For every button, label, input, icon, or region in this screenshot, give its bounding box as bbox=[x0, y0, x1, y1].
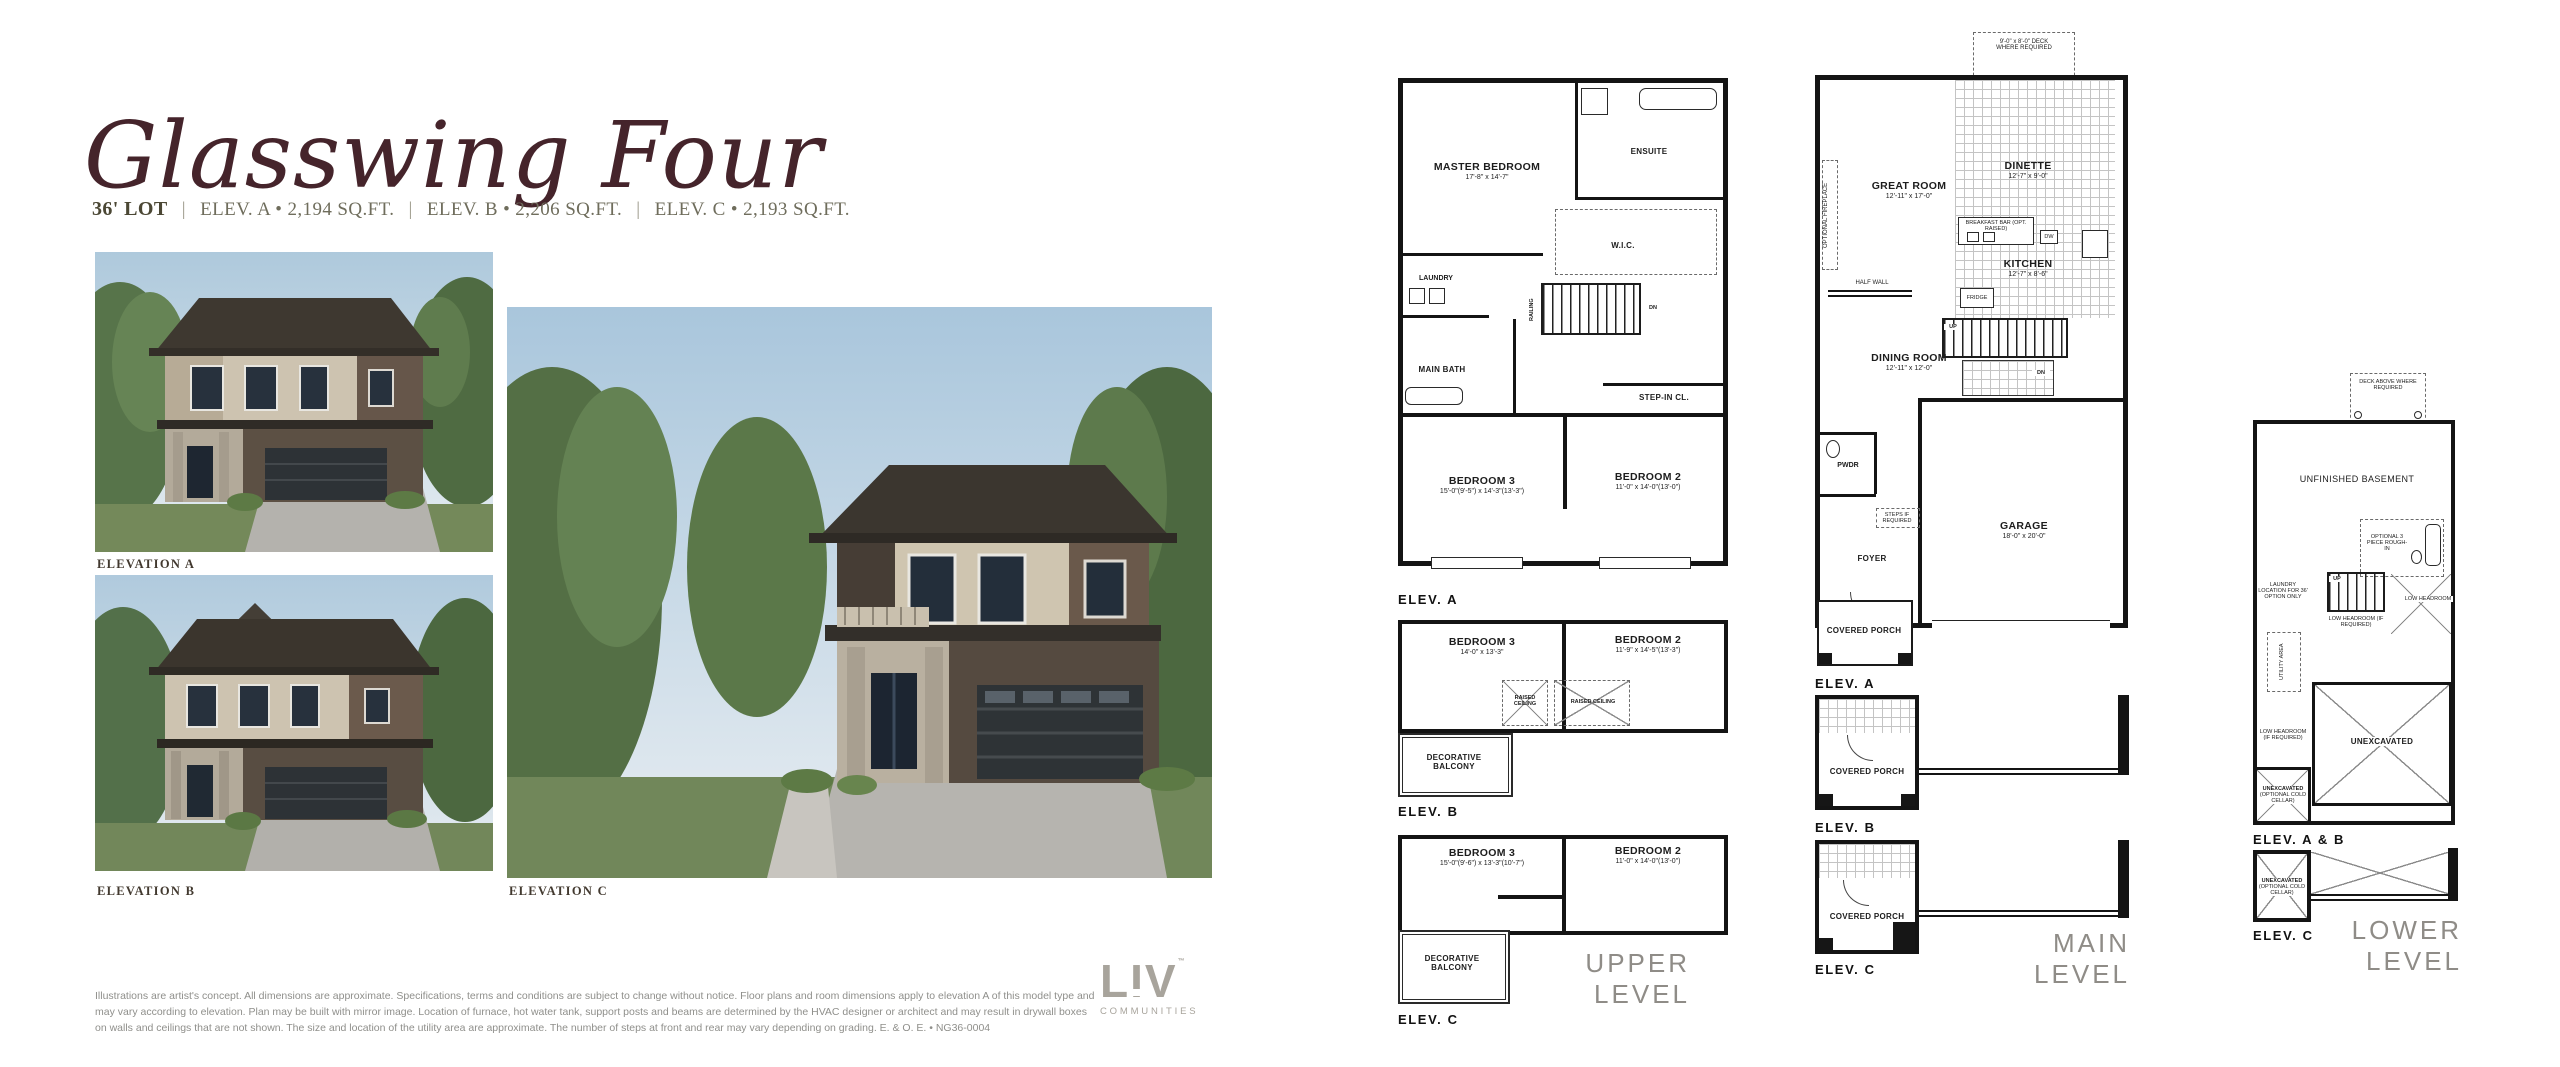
main-level-porch-elev-c: COVERED PORCH bbox=[1815, 840, 1919, 954]
brochure-page: { "title": "Glasswing Four", "subtitle":… bbox=[0, 0, 2560, 1067]
wall bbox=[1820, 494, 1876, 497]
balcony-label: DECORATIVE BALCONY bbox=[1408, 954, 1496, 972]
breakfast-bar-label: BREAKFAST BAR (OPT. RAISED) bbox=[1963, 220, 2029, 232]
garage-wall bbox=[1918, 398, 2128, 402]
wall bbox=[1575, 197, 1723, 200]
deck-above-outline: DECK ABOVE WHERE REQUIRED bbox=[2350, 373, 2426, 423]
wall bbox=[1562, 839, 1566, 931]
decorative-balcony-elev-c: DECORATIVE BALCONY bbox=[1398, 930, 1510, 1004]
wall bbox=[1498, 895, 1566, 899]
wall-stub bbox=[2118, 840, 2129, 918]
laundry-location-note: LAUNDRY LOCATION FOR 36' OPTION ONLY bbox=[2257, 582, 2309, 600]
wall bbox=[1513, 319, 1516, 413]
porch-label: COVERED PORCH bbox=[1823, 767, 1911, 776]
upper-level-plan-elev-a: ENSUITE MASTER BEDROOM 17'-8" x 14'-7" W… bbox=[1398, 78, 1728, 566]
low-headroom-if-required-label: LOW HEADROOM (IF REQUIRED) bbox=[2325, 616, 2387, 628]
bay-window bbox=[1431, 557, 1523, 569]
porch-roof-grid bbox=[1819, 699, 1915, 733]
porch-hatch bbox=[2311, 852, 2449, 894]
toilet-fixture bbox=[1826, 440, 1840, 458]
wall bbox=[1575, 83, 1578, 199]
elevation-a-rendering bbox=[95, 252, 493, 552]
half-wall-line bbox=[1828, 290, 1912, 297]
dryer-fixture bbox=[1429, 288, 1445, 304]
logo-i-notch bbox=[1132, 989, 1143, 996]
steps-note: STEPS IF REQUIRED bbox=[1879, 512, 1915, 524]
decorative-balcony-elev-b: DECORATIVE BALCONY bbox=[1398, 733, 1513, 797]
wall-stub bbox=[2118, 695, 2129, 775]
tub-fixture bbox=[1405, 387, 1463, 405]
deck-post bbox=[2354, 411, 2362, 419]
raised-ceiling-label: RAISED CEILING bbox=[1505, 695, 1545, 707]
utility-area-outline: UTILITY AREA bbox=[2267, 632, 2301, 692]
raised-ceiling-label: RAISED CEILING bbox=[1563, 699, 1623, 705]
wall bbox=[1603, 383, 1723, 386]
wall bbox=[1403, 315, 1489, 318]
sink-fixture bbox=[1983, 232, 1995, 242]
room-label-great-room: GREAT ROOM 12'-11" x 17'-0" bbox=[1834, 180, 1984, 200]
spec-elev-a: ELEV. A • 2,194 SQ.FT. bbox=[200, 199, 394, 220]
lower-elev-ab-tag: ELEV. A & B bbox=[2253, 832, 2345, 847]
porch-roof-grid bbox=[1819, 844, 1915, 878]
elevation-b-illustration bbox=[95, 575, 493, 871]
stairs-dn-label: DN bbox=[2032, 370, 2050, 376]
stairs-dn-label: DN bbox=[1643, 305, 1663, 311]
wall bbox=[1874, 432, 1877, 494]
room-label-bedroom-2: BEDROOM 2 11'-9" x 14'-5"(13'-3") bbox=[1576, 634, 1720, 654]
lot-size: 36' LOT bbox=[92, 198, 168, 220]
wall bbox=[1403, 253, 1543, 256]
stove-fixture bbox=[2082, 230, 2108, 258]
room-label-ensuite: ENSUITE bbox=[1589, 147, 1709, 156]
low-headroom-hatch bbox=[2391, 574, 2451, 634]
porch-pillar bbox=[1893, 922, 1915, 950]
legal-disclaimer: Illustrations are artist's concept. All … bbox=[95, 988, 1100, 1037]
elevation-b-label: ELEVATION B bbox=[97, 884, 195, 899]
covered-porch-elev-a: COVERED PORCH bbox=[1817, 600, 1913, 666]
room-label-master-bedroom: MASTER BEDROOM 17'-8" x 14'-7" bbox=[1411, 161, 1563, 181]
room-label-dinette: DINETTE 12'-7" x 9'-0" bbox=[1972, 160, 2084, 180]
wall bbox=[1563, 417, 1567, 509]
room-label-step-in-closet: STEP-IN CL. bbox=[1609, 393, 1719, 402]
elevation-b-rendering bbox=[95, 575, 493, 871]
upper-level-plan-elev-c: BEDROOM 3 15'-0"(9'-6") x 13'-3"(10'-7")… bbox=[1398, 835, 1728, 935]
main-level-plan-elev-a: GREAT ROOM 12'-11" x 17'-0" OPTIONAL FIR… bbox=[1815, 75, 2128, 628]
spec-elev-b: ELEV. B • 2,206 SQ.FT. bbox=[427, 199, 622, 220]
porch-pillar bbox=[1898, 653, 1911, 664]
deck-note: 9'-0" x 8'-0" DECK WHERE REQUIRED bbox=[1988, 39, 2060, 51]
separator: | bbox=[182, 199, 186, 220]
garage-front-wall-line bbox=[1919, 768, 2120, 775]
porch-pillar bbox=[1901, 794, 1915, 806]
rough-in-label: OPTIONAL 3 PIECE ROUGH-IN bbox=[2365, 534, 2409, 552]
elevation-c-rendering bbox=[507, 307, 1212, 878]
cold-cellar-zone: UNEXCAVATED (OPTIONAL COLD CELLAR) bbox=[2257, 767, 2311, 821]
wall-stub bbox=[2448, 848, 2458, 901]
breakfast-bar: BREAKFAST BAR (OPT. RAISED) bbox=[1958, 217, 2034, 245]
porch-label: COVERED PORCH bbox=[1823, 912, 1911, 921]
wall bbox=[1820, 432, 1876, 435]
elevation-c-label: ELEVATION C bbox=[509, 884, 608, 899]
wic-shelving bbox=[1555, 209, 1717, 275]
deck-above-note: DECK ABOVE WHERE REQUIRED bbox=[2359, 379, 2417, 391]
main-level-heading: MAIN LEVEL bbox=[1985, 928, 2130, 989]
porch-wall-line bbox=[2311, 894, 2451, 901]
bay-window bbox=[1599, 557, 1691, 569]
room-label-laundry: LAUNDRY bbox=[1405, 275, 1467, 282]
steps-outline: STEPS IF REQUIRED bbox=[1876, 508, 1920, 528]
upper-level-plan-elev-b: BEDROOM 3 14'-0" x 13'-3" BEDROOM 2 11'-… bbox=[1398, 620, 1728, 733]
liv-communities-logo: LIV™ COMMUNITIES bbox=[1100, 958, 1210, 1017]
unexcavated-zone: UNEXCAVATED bbox=[2312, 682, 2452, 806]
fridge-fixture: FRIDGE bbox=[1960, 288, 1994, 308]
dw-label: DW bbox=[2042, 234, 2056, 240]
lower-elev-c-tag: ELEV. C bbox=[2253, 928, 2314, 943]
porch-label: COVERED PORCH bbox=[1823, 626, 1905, 635]
toilet-fixture bbox=[2411, 550, 2422, 564]
lot-spec-line: 36' LOT | ELEV. A • 2,194 SQ.FT. | ELEV.… bbox=[92, 198, 850, 221]
garage-front-wall-line bbox=[1919, 910, 2120, 917]
elevation-c-illustration bbox=[507, 307, 1212, 878]
model-name-title: Glasswing Four bbox=[84, 102, 823, 209]
room-label-bedroom-2: BEDROOM 2 11'-0" x 14'-0"(13'-0") bbox=[1576, 845, 1720, 865]
separator: | bbox=[409, 199, 413, 220]
room-label-garage: GARAGE 18'-0" x 20'-0" bbox=[1962, 520, 2086, 540]
stairs-up-label: UP bbox=[1944, 324, 1962, 330]
room-label-pwdr: PWDR bbox=[1824, 462, 1872, 469]
logo-trademark: ™ bbox=[1178, 958, 1187, 965]
tub-fixture bbox=[2425, 524, 2441, 566]
shower-fixture bbox=[1581, 88, 1608, 115]
stairs-up-label: UP bbox=[2329, 576, 2345, 582]
room-label-dining-room: DINING ROOM 12'-11" x 12'-0" bbox=[1834, 352, 1984, 372]
elevation-a-illustration bbox=[95, 252, 493, 552]
deck-post bbox=[2414, 411, 2422, 419]
upper-elev-b-tag: ELEV. B bbox=[1398, 804, 1459, 819]
rough-in-zone: OPTIONAL 3 PIECE ROUGH-IN bbox=[2360, 519, 2444, 577]
logo-tagline: COMMUNITIES bbox=[1100, 1006, 1210, 1017]
room-label-main-bath: MAIN BATH bbox=[1405, 365, 1479, 374]
dishwasher: DW bbox=[2040, 230, 2058, 244]
utility-area-label: UTILITY AREA bbox=[2279, 637, 2285, 687]
door-arc bbox=[1843, 880, 1869, 906]
low-headroom-if-required-label: LOW HEADROOM (IF REQUIRED) bbox=[2257, 729, 2309, 741]
half-wall-label: HALF WALL bbox=[1842, 280, 1902, 286]
room-label-bedroom-3: BEDROOM 3 15'-0"(9'-5") x 14'-3"(13'-3") bbox=[1407, 475, 1557, 495]
raised-ceiling-zone: RAISED CEILING bbox=[1554, 680, 1630, 726]
room-label-unfinished-basement: UNFINISHED BASEMENT bbox=[2287, 474, 2427, 484]
door-arc bbox=[1847, 735, 1873, 761]
main-elev-c-tag: ELEV. C bbox=[1815, 962, 1876, 977]
main-elev-a-tag: ELEV. A bbox=[1815, 676, 1875, 691]
sink-fixture bbox=[1967, 232, 1979, 242]
room-label-foyer: FOYER bbox=[1840, 554, 1904, 563]
room-label-bedroom-2: BEDROOM 2 11'-0" x 14'-0"(13'-0") bbox=[1575, 471, 1721, 491]
optional-fireplace: OPTIONAL FIREPLACE bbox=[1822, 160, 1838, 270]
upper-elev-c-tag: ELEV. C bbox=[1398, 1012, 1459, 1027]
tub-fixture bbox=[1639, 88, 1717, 110]
upper-elev-a-tag: ELEV. A bbox=[1398, 592, 1458, 607]
spec-elev-c: ELEV. C • 2,193 SQ.FT. bbox=[655, 199, 850, 220]
raised-ceiling-zone: RAISED CEILING bbox=[1502, 680, 1548, 726]
main-elev-b-tag: ELEV. B bbox=[1815, 820, 1876, 835]
unexcavated-label: UNEXCAVATED bbox=[2335, 737, 2429, 746]
room-label-bedroom-3: BEDROOM 3 15'-0"(9'-6") x 13'-3"(10'-7") bbox=[1406, 847, 1558, 867]
upper-level-heading: UPPER LEVEL bbox=[1540, 948, 1690, 1009]
lower-level-plan-elev-c: UNEXCAVATED (OPTIONAL COLD CELLAR) bbox=[2253, 850, 2311, 922]
porch-pillar bbox=[1819, 794, 1833, 806]
lower-level-heading: LOWER LEVEL bbox=[2320, 915, 2462, 976]
low-headroom-label: LOW HEADROOM bbox=[2403, 596, 2453, 602]
main-level-porch-elev-b: COVERED PORCH bbox=[1815, 695, 1919, 810]
logo-wordmark: LIV™ bbox=[1100, 958, 1187, 1004]
porch-pillar bbox=[1819, 653, 1832, 664]
room-label-bedroom-3: BEDROOM 3 14'-0" x 13'-3" bbox=[1410, 636, 1554, 656]
balcony-label: DECORATIVE BALCONY bbox=[1408, 753, 1500, 771]
lower-level-plan-elev-ab: UNFINISHED BASEMENT OPTIONAL 3 PIECE ROU… bbox=[2253, 420, 2455, 825]
elevation-a-label: ELEVATION A bbox=[97, 557, 195, 572]
cold-cellar-label: UNEXCAVATED (OPTIONAL COLD CELLAR) bbox=[2258, 878, 2306, 896]
room-label-kitchen: KITCHEN 12'-7" x 8'-6" bbox=[1972, 258, 2084, 278]
separator: | bbox=[636, 199, 640, 220]
porch-pillar bbox=[1819, 938, 1833, 950]
cold-cellar-label: UNEXCAVATED (OPTIONAL COLD CELLAR) bbox=[2258, 786, 2308, 804]
garage-door-opening bbox=[1932, 620, 2110, 631]
fridge-label: FRIDGE bbox=[1963, 295, 1991, 301]
washer-fixture bbox=[1409, 288, 1425, 304]
stairs-upper bbox=[1541, 283, 1641, 335]
railing-label: RAILING bbox=[1529, 287, 1535, 333]
